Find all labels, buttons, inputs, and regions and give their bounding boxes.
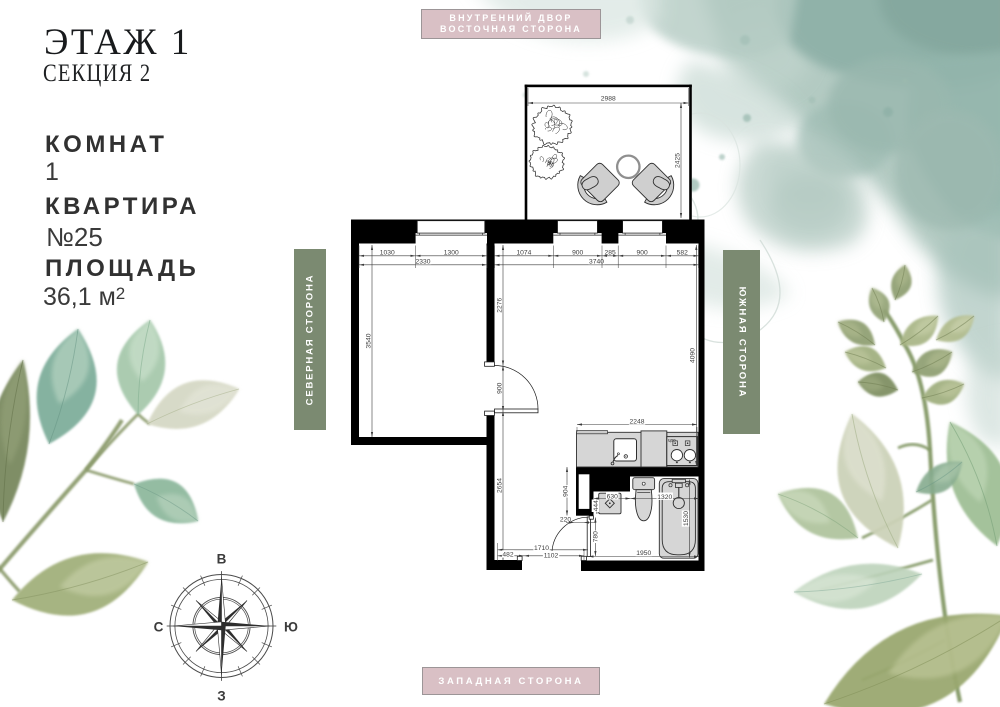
svg-text:1300: 1300 — [444, 249, 459, 256]
svg-text:1320: 1320 — [657, 494, 672, 501]
svg-text:2330: 2330 — [416, 259, 431, 266]
svg-text:4090: 4090 — [690, 348, 697, 363]
svg-text:1102: 1102 — [544, 552, 559, 559]
svg-text:3540: 3540 — [365, 333, 372, 348]
svg-text:220: 220 — [560, 517, 571, 524]
svg-text:З: З — [217, 689, 225, 704]
svg-text:2425: 2425 — [674, 153, 681, 168]
svg-text:630: 630 — [607, 493, 618, 500]
svg-text:900: 900 — [637, 249, 648, 256]
svg-text:582: 582 — [677, 249, 688, 256]
svg-text:444: 444 — [593, 500, 600, 511]
svg-text:482: 482 — [502, 552, 513, 559]
svg-text:2988: 2988 — [601, 95, 616, 102]
svg-text:Ю: Ю — [284, 620, 298, 635]
svg-text:285: 285 — [605, 249, 616, 256]
svg-text:900: 900 — [572, 249, 583, 256]
svg-text:1950: 1950 — [636, 550, 651, 557]
svg-text:2248: 2248 — [630, 419, 645, 426]
svg-text:780: 780 — [592, 531, 599, 542]
svg-text:В: В — [217, 552, 227, 567]
svg-text:ЦОО: ЦОО — [668, 439, 676, 443]
svg-text:1530: 1530 — [683, 511, 690, 526]
svg-text:С: С — [154, 620, 164, 635]
svg-text:1074: 1074 — [516, 249, 531, 256]
svg-text:2654: 2654 — [496, 478, 503, 493]
svg-text:1030: 1030 — [380, 249, 395, 256]
svg-text:904: 904 — [562, 485, 569, 496]
svg-text:900: 900 — [496, 382, 503, 393]
svg-text:2276: 2276 — [496, 298, 503, 313]
